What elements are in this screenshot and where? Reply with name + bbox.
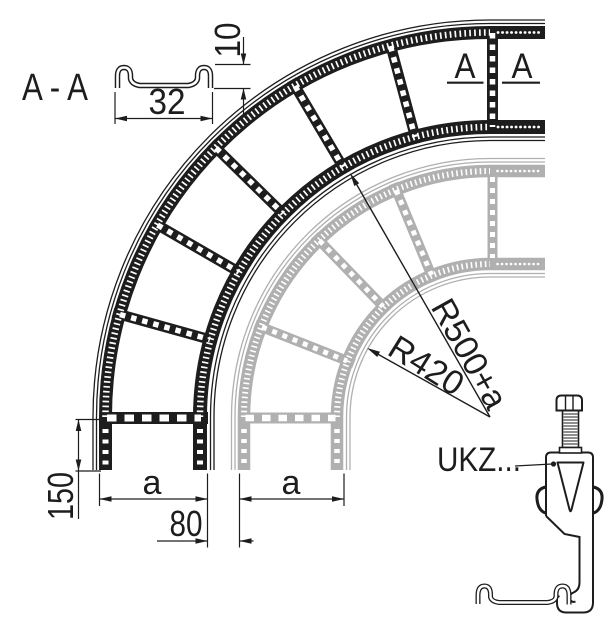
width-dimension-lines (100, 474, 345, 548)
clamp-detail: UKZ... (437, 396, 602, 613)
ghost-rung-1-slots (262, 327, 347, 361)
width-arrow-left (115, 116, 127, 122)
profile-width-value: 32 (149, 81, 186, 122)
bottom-dimensions: 150 a a 80 (40, 420, 344, 548)
bolt-head (557, 396, 583, 411)
width-arrow-right (201, 116, 213, 122)
bolt-collar (560, 448, 582, 454)
leg-length-arrow-top (76, 420, 82, 432)
ghost-width-arrow-right (332, 496, 344, 502)
clamp-inner-arm (546, 516, 580, 602)
cut-letter-right: A (512, 47, 534, 86)
profile-height-value: 10 (207, 23, 248, 58)
drawing-canvas: A - A 32 10 A A R500+a R420 150 a (0, 0, 616, 637)
main-width-label: a (143, 464, 162, 502)
clamp-right-tab (594, 487, 603, 513)
main-width-arrow-right (196, 496, 208, 502)
clamp-wedge (558, 463, 584, 512)
clamp-label: UKZ... (437, 441, 521, 479)
ghost-width-arrow-left (240, 496, 252, 502)
cut-letter-left: A (455, 47, 477, 86)
leg-length-value: 150 (40, 472, 81, 520)
leg-length-arrow-bottom (76, 460, 82, 472)
section-view: A - A 32 10 (22, 23, 251, 125)
cable-ladder-bend-drawing: A - A 32 10 A A R500+a R420 150 a (0, 0, 616, 637)
rail-offset-value: 80 (170, 503, 203, 544)
ghost-width-label: a (282, 464, 301, 502)
ghost-rung-2-slots (320, 241, 384, 307)
main-width-arrow-left (100, 496, 112, 502)
clamp-left-tab (537, 487, 546, 513)
clamp-leader-dot (551, 461, 556, 466)
height-arrow-bottom (241, 89, 247, 100)
radius-inner-arrow (367, 348, 380, 357)
offset-arrow-right (240, 538, 252, 544)
section-view-label: A - A (22, 67, 89, 109)
